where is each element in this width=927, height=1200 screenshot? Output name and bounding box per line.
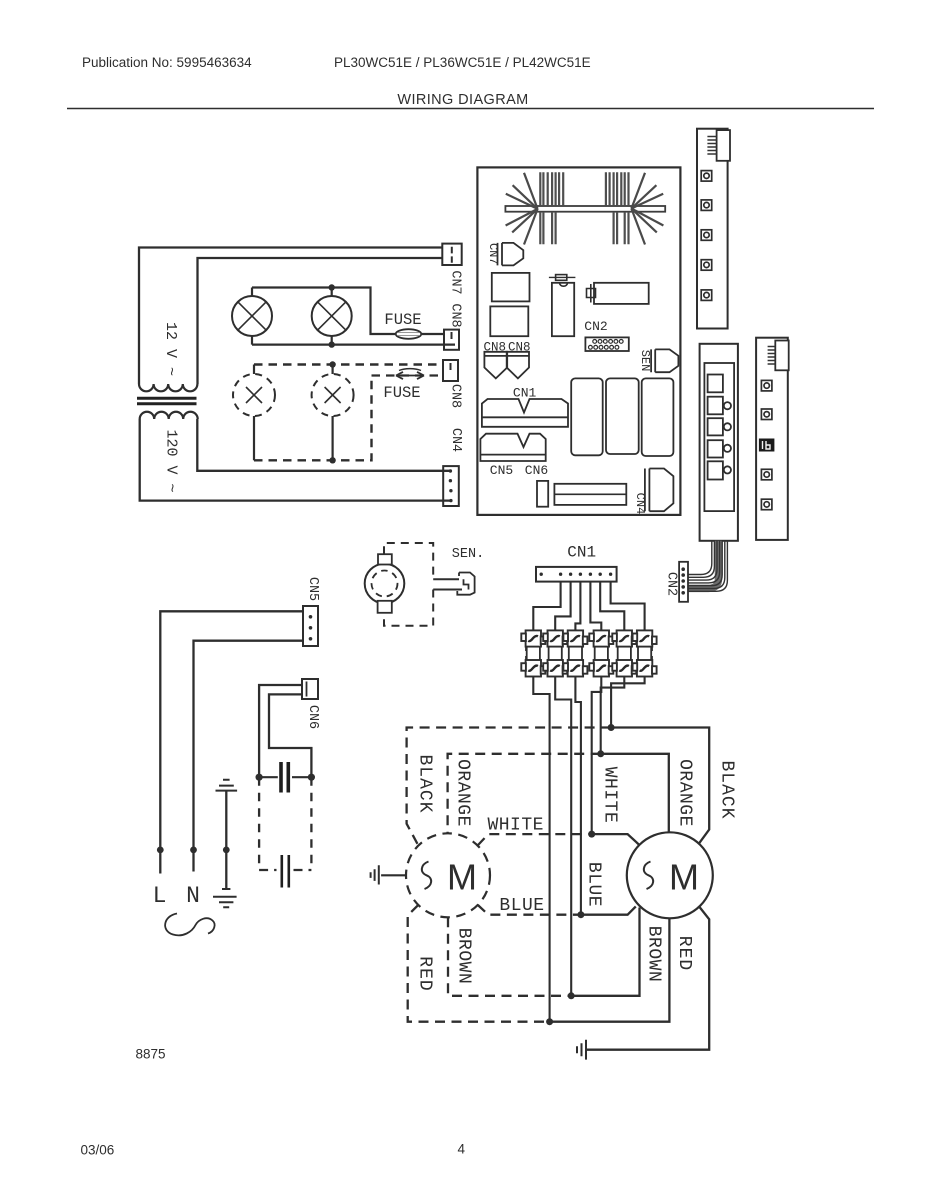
svg-text:CN6: CN6: [305, 705, 320, 729]
svg-text:4: 4: [458, 1142, 466, 1157]
svg-text:8875: 8875: [136, 1047, 166, 1062]
svg-text:RED: RED: [415, 956, 435, 991]
svg-text:BLUE: BLUE: [584, 862, 604, 907]
svg-text:CN7: CN7: [486, 243, 500, 265]
svg-text:CN8: CN8: [448, 303, 463, 327]
svg-text:CN6: CN6: [525, 463, 548, 478]
svg-text:BLACK: BLACK: [415, 754, 435, 813]
svg-text:M: M: [447, 857, 477, 898]
svg-text:FUSE: FUSE: [383, 384, 420, 402]
svg-text:12 V ~: 12 V ~: [162, 322, 179, 376]
svg-text:CN5: CN5: [490, 463, 513, 478]
svg-text:M: M: [669, 857, 699, 898]
svg-text:120 V ~: 120 V ~: [163, 429, 180, 492]
svg-text:N: N: [186, 883, 200, 909]
svg-text:BROWN: BROWN: [454, 928, 474, 985]
svg-text:L: L: [153, 883, 167, 909]
svg-text:SEN.: SEN.: [452, 547, 484, 562]
svg-text:03/06: 03/06: [81, 1143, 115, 1158]
svg-text:WHITE: WHITE: [600, 767, 620, 824]
svg-text:WIRING DIAGRAM: WIRING DIAGRAM: [397, 92, 528, 108]
svg-text:ORANGE: ORANGE: [453, 759, 473, 827]
svg-text:RED: RED: [674, 936, 694, 971]
svg-text:BLACK: BLACK: [717, 760, 737, 819]
svg-text:BLUE: BLUE: [499, 896, 544, 916]
svg-text:Publication No: 5995463634: Publication No: 5995463634: [82, 55, 252, 70]
svg-text:PL30WC51E / PL36WC51E / PL42WC: PL30WC51E / PL36WC51E / PL42WC51E: [334, 55, 591, 70]
svg-text:CN5: CN5: [305, 577, 320, 601]
svg-text:CN2: CN2: [664, 572, 679, 596]
svg-text:ORANGE: ORANGE: [675, 759, 695, 827]
svg-text:SEN: SEN: [638, 350, 652, 372]
svg-text:CN1: CN1: [567, 544, 596, 562]
svg-text:BROWN: BROWN: [644, 926, 664, 983]
svg-text:CN7: CN7: [448, 270, 463, 294]
svg-text:FUSE: FUSE: [384, 311, 421, 329]
svg-text:CN2: CN2: [584, 319, 607, 334]
svg-text:CN4: CN4: [448, 428, 463, 452]
svg-text:WHITE: WHITE: [487, 816, 544, 836]
svg-text:CN8: CN8: [448, 384, 463, 408]
